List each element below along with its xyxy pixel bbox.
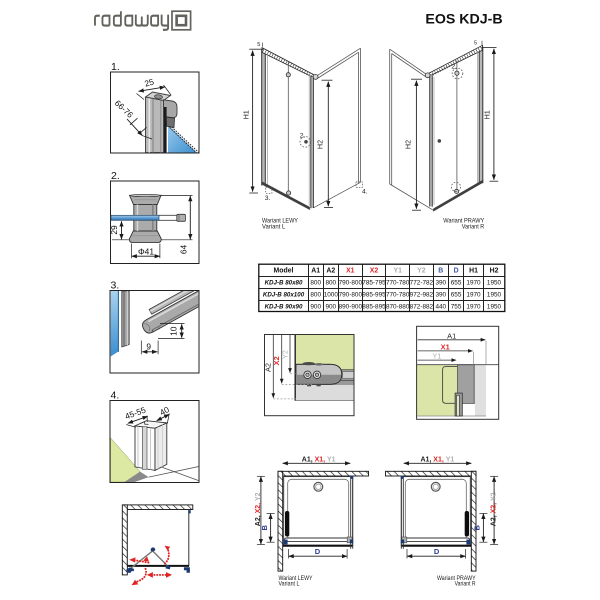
svg-text:800: 800 [325, 280, 336, 287]
svg-text:A2,X2,Y2: A2,X2,Y2 [255, 492, 262, 526]
svg-text:2.: 2. [451, 63, 457, 70]
svg-text:1970: 1970 [466, 280, 481, 287]
svg-text:A1: A1 [447, 331, 456, 340]
svg-text:66-76: 66-76 [113, 98, 136, 120]
svg-text:972-982: 972-982 [410, 291, 434, 298]
svg-text:755: 755 [451, 303, 462, 310]
svg-text:45-55: 45-55 [123, 405, 147, 422]
svg-text:Y2: Y2 [417, 268, 426, 275]
svg-text:1.: 1. [111, 61, 120, 73]
svg-text:655: 655 [451, 280, 462, 287]
svg-text:Y1: Y1 [393, 268, 402, 275]
svg-text:770-780: 770-780 [386, 291, 410, 298]
svg-text:872-882: 872-882 [410, 303, 434, 310]
svg-text:H2: H2 [404, 140, 413, 149]
svg-text:KDJ-B 80x100: KDJ-B 80x100 [263, 291, 305, 298]
svg-text:1950: 1950 [487, 291, 502, 298]
svg-text:2.: 2. [300, 133, 306, 140]
svg-text:1000: 1000 [324, 291, 339, 298]
svg-text:D: D [454, 268, 459, 275]
svg-text:772-782: 772-782 [410, 280, 434, 287]
svg-text:900: 900 [310, 303, 321, 310]
svg-text:H1: H1 [469, 268, 478, 275]
svg-text:B: B [438, 268, 443, 275]
svg-text:1950: 1950 [487, 303, 502, 310]
svg-text:785-795: 785-795 [362, 280, 386, 287]
svg-text:29: 29 [109, 225, 119, 235]
svg-text:890-900: 890-900 [339, 303, 363, 310]
svg-text:Variant R: Variant R [455, 581, 476, 588]
svg-text:5: 5 [474, 41, 477, 47]
svg-text:4.: 4. [362, 188, 368, 195]
svg-text:770-780: 770-780 [386, 280, 410, 287]
svg-text:A2: A2 [326, 268, 335, 275]
svg-text:440: 440 [435, 303, 446, 310]
svg-text:3.: 3. [111, 280, 120, 292]
svg-text:800: 800 [310, 280, 321, 287]
svg-text:D: D [434, 547, 440, 556]
svg-text:25: 25 [143, 76, 155, 88]
svg-text:H2: H2 [316, 140, 325, 149]
svg-text:985-995: 985-995 [362, 291, 386, 298]
svg-text:5: 5 [257, 42, 260, 48]
svg-text:800: 800 [310, 291, 321, 298]
svg-text:390: 390 [435, 291, 446, 298]
svg-text:KDJ-B 90x90: KDJ-B 90x90 [265, 303, 303, 310]
svg-text:870-880: 870-880 [386, 303, 410, 310]
svg-text:655: 655 [451, 291, 462, 298]
svg-text:4.: 4. [111, 390, 120, 402]
svg-text:2.: 2. [111, 170, 120, 182]
svg-text:X2: X2 [370, 268, 379, 275]
svg-text:A1: A1 [311, 268, 320, 275]
svg-text:D: D [315, 547, 321, 556]
svg-text:3.: 3. [265, 195, 271, 202]
svg-text:790-800: 790-800 [339, 280, 363, 287]
svg-text:EOS KDJ-B: EOS KDJ-B [425, 12, 502, 28]
svg-text:1950: 1950 [487, 280, 502, 287]
svg-text:10: 10 [168, 326, 178, 336]
svg-text:A1,X1,Y1: A1,X1,Y1 [302, 457, 336, 464]
svg-text:H2: H2 [490, 268, 499, 275]
svg-text:900: 900 [325, 303, 336, 310]
svg-text:Y2: Y2 [280, 350, 289, 359]
svg-text:KDJ-B 80x80: KDJ-B 80x80 [265, 280, 303, 287]
svg-text:Variant L: Variant L [279, 581, 300, 588]
svg-text:390: 390 [435, 280, 446, 287]
svg-text:9: 9 [146, 342, 151, 352]
svg-text:Y1: Y1 [432, 352, 441, 361]
svg-text:64: 64 [179, 245, 189, 255]
svg-text:X1: X1 [346, 268, 355, 275]
svg-text:A2,X2,Y2: A2,X2,Y2 [491, 492, 498, 526]
svg-text:Model: Model [274, 268, 294, 275]
svg-text:1970: 1970 [466, 291, 481, 298]
svg-text:A1,X1,Y1: A1,X1,Y1 [421, 457, 455, 464]
svg-text:Variant L: Variant L [262, 224, 286, 231]
svg-text:H1: H1 [242, 110, 251, 119]
svg-text:885-895: 885-895 [362, 303, 386, 310]
svg-text:B: B [473, 525, 482, 531]
svg-text:X1: X1 [441, 343, 450, 352]
svg-text:Variant R: Variant R [462, 224, 485, 231]
svg-text:Φ41: Φ41 [138, 246, 154, 256]
svg-text:H1: H1 [482, 110, 491, 119]
svg-text:1970: 1970 [466, 303, 481, 310]
svg-text:790-800: 790-800 [339, 291, 363, 298]
